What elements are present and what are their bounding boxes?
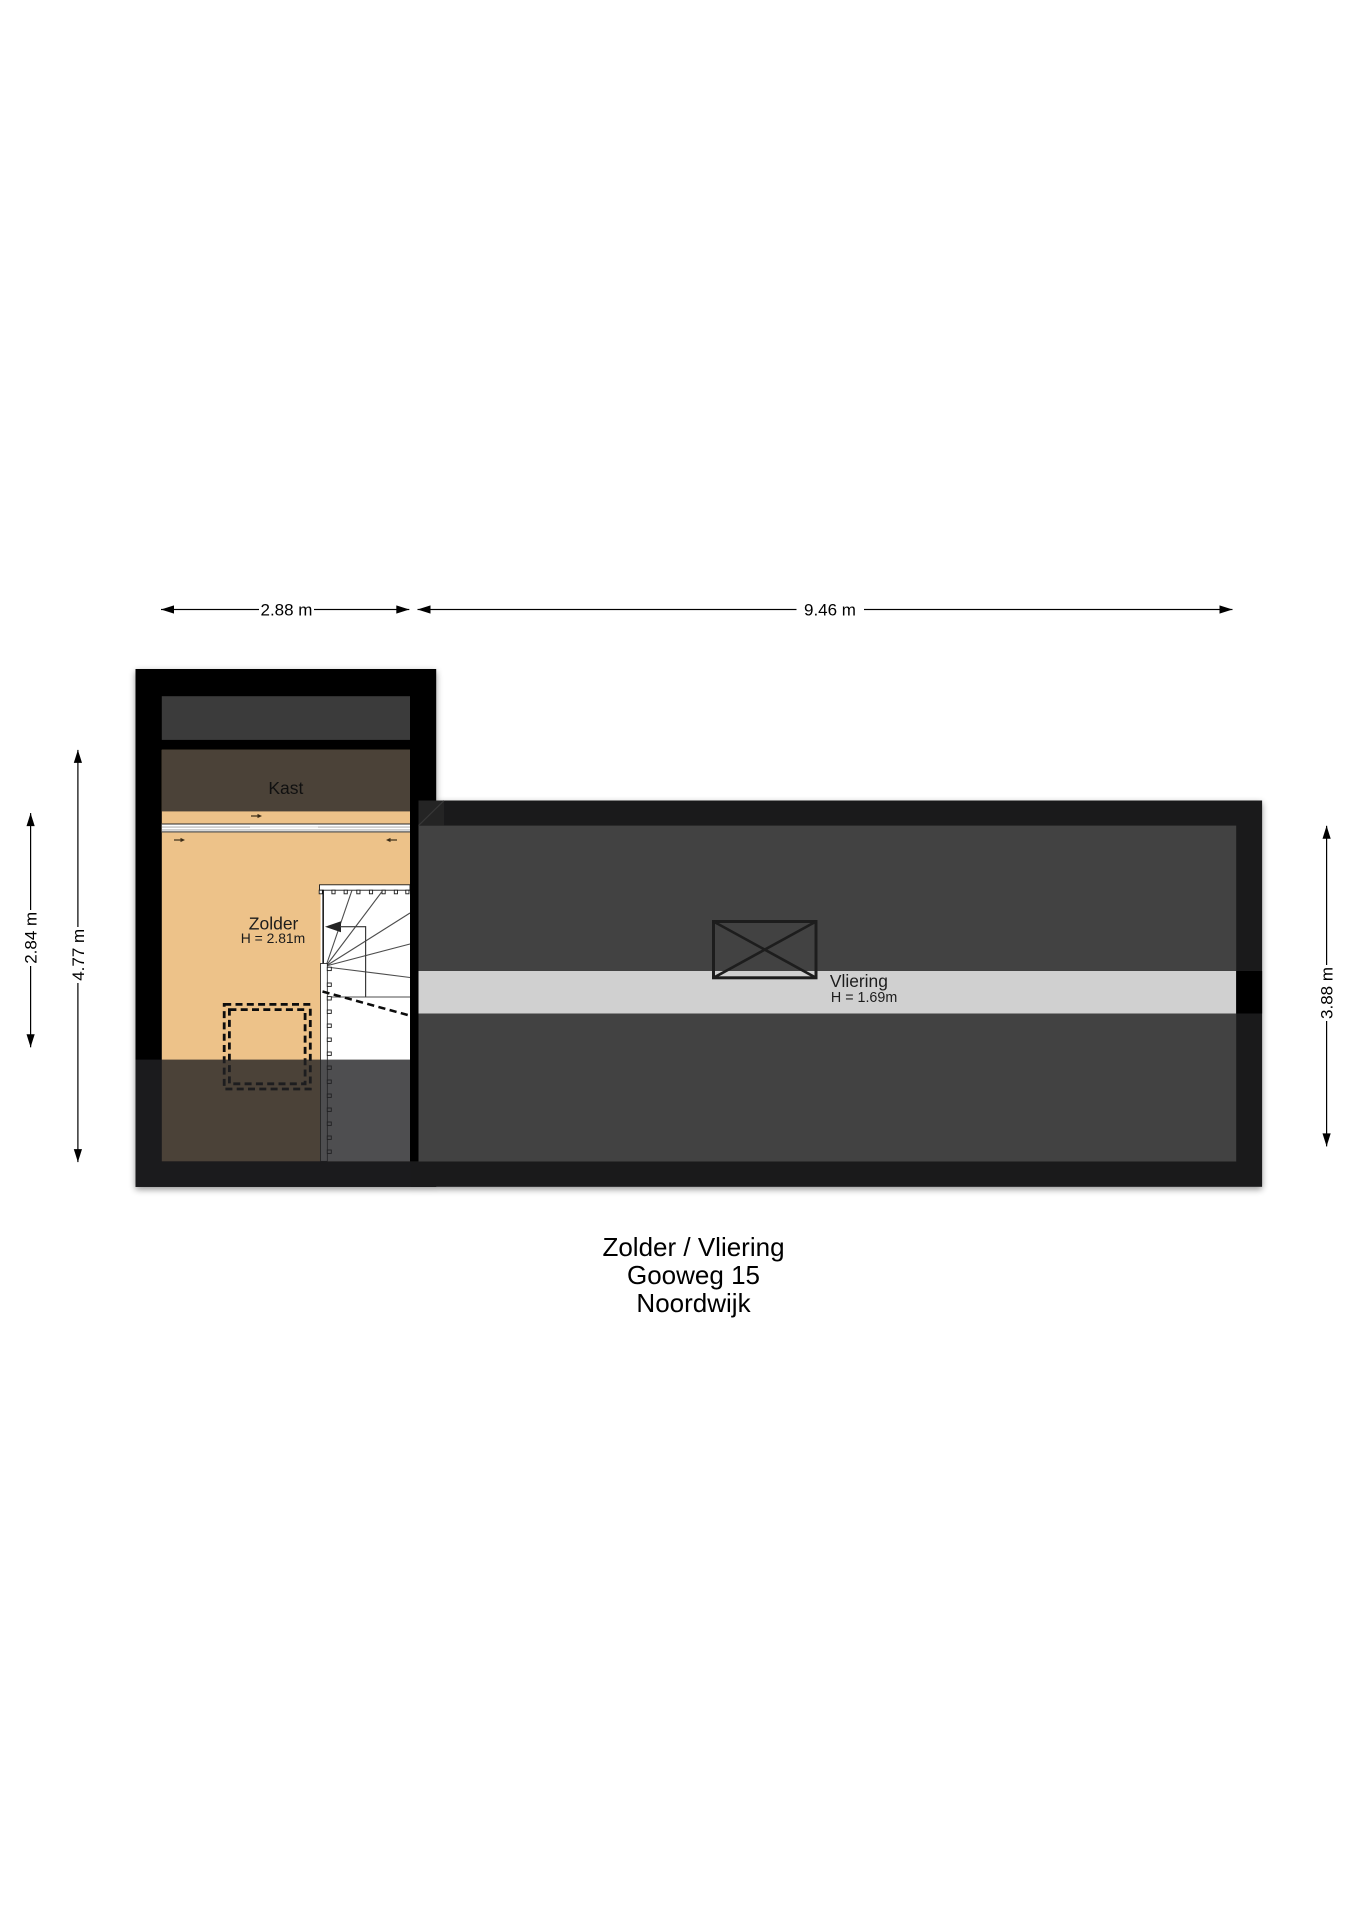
svg-text:Noordwijk: Noordwijk [636, 1288, 751, 1318]
svg-text:Gooweg 15: Gooweg 15 [627, 1260, 760, 1290]
svg-text:Vliering: Vliering [830, 971, 888, 991]
svg-text:Kast: Kast [268, 778, 303, 798]
svg-text:H = 2.81m: H = 2.81m [241, 930, 305, 946]
svg-text:2.84 m: 2.84 m [22, 912, 41, 964]
svg-text:9.46 m: 9.46 m [804, 600, 856, 619]
svg-text:2.88 m: 2.88 m [261, 600, 313, 619]
svg-text:3.88 m: 3.88 m [1318, 967, 1337, 1019]
svg-text:Zolder / Vliering: Zolder / Vliering [602, 1232, 784, 1262]
svg-text:H = 1.69m: H = 1.69m [831, 990, 897, 1006]
svg-text:4.77 m: 4.77 m [69, 929, 88, 981]
